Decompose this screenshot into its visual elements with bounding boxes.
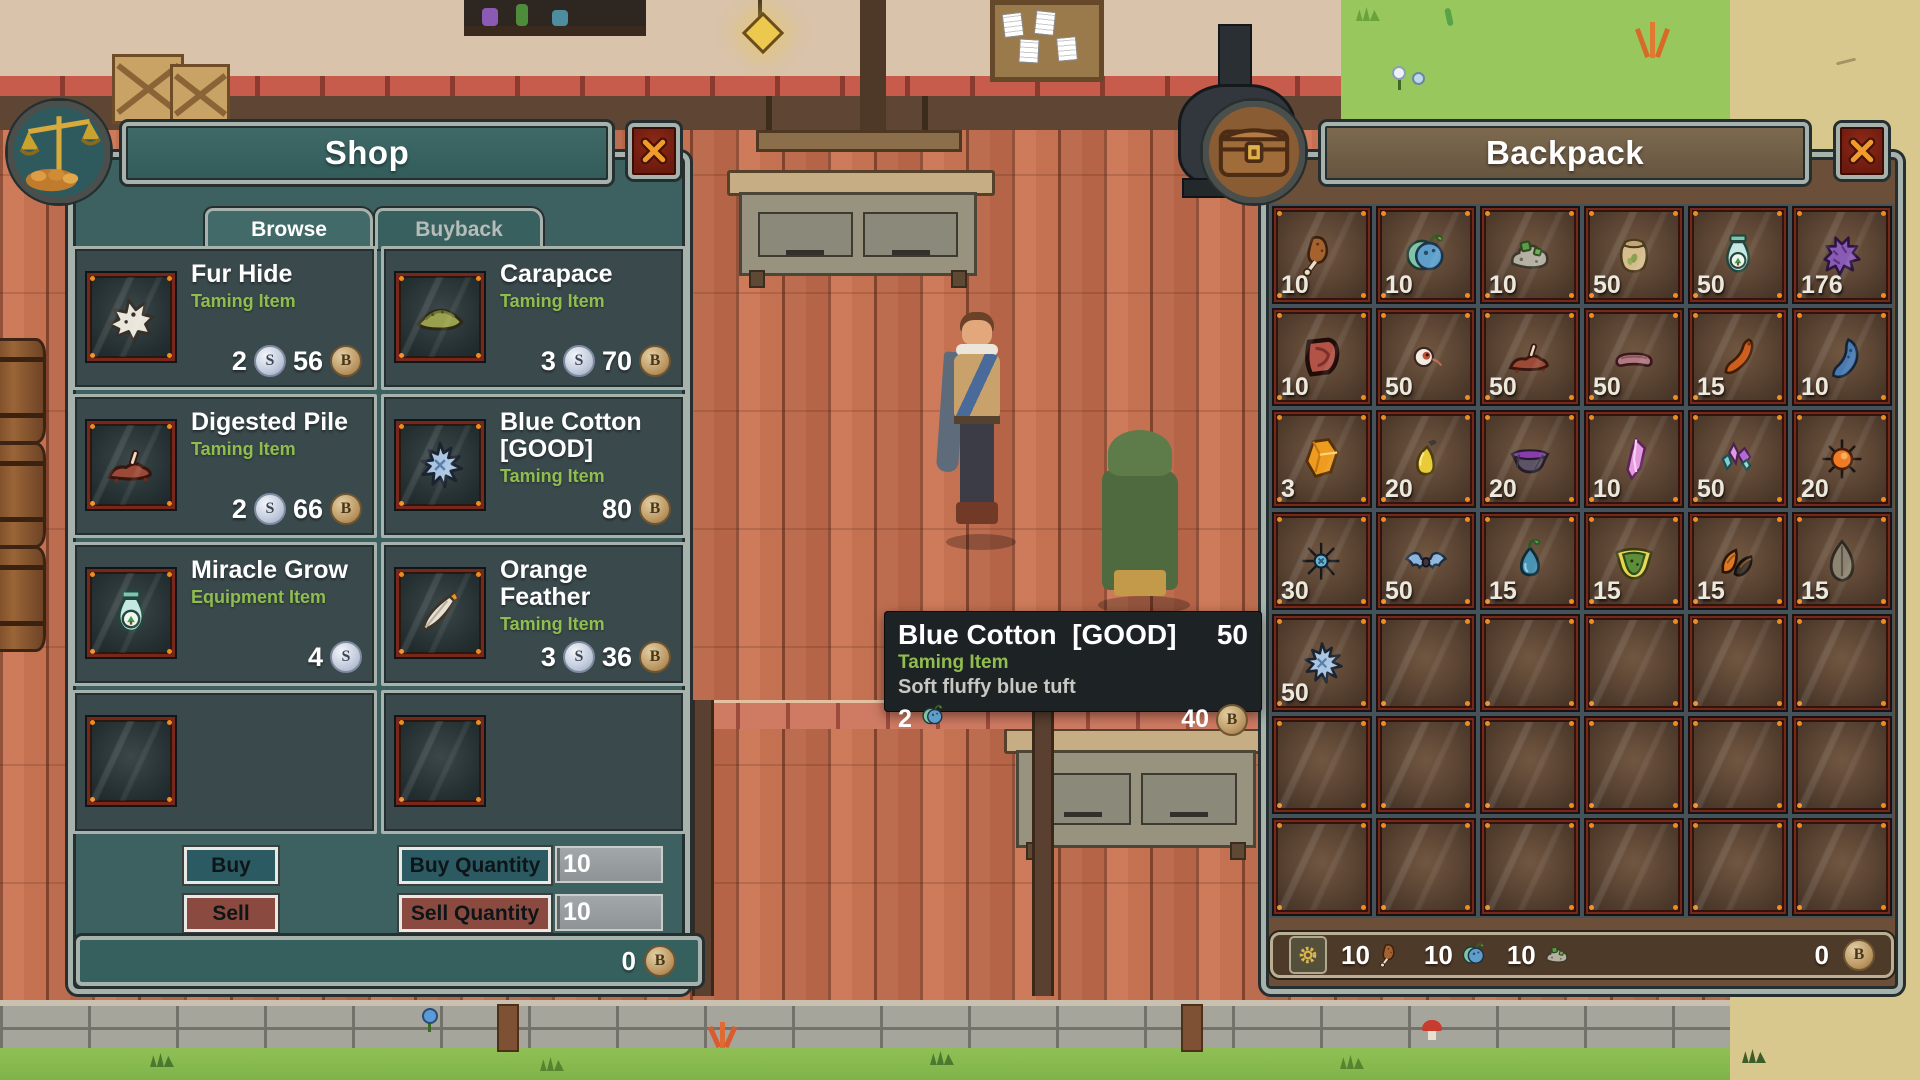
- backpack-slot[interactable]: 50: [1374, 306, 1478, 408]
- shop-item-name: Carapace: [500, 261, 675, 288]
- resource-value: 10: [1424, 940, 1453, 971]
- backpack-slot[interactable]: 50: [1686, 408, 1790, 510]
- backpack-slot[interactable]: 20: [1478, 408, 1582, 510]
- blue-fruit-icon: [919, 702, 947, 730]
- backpack-slot[interactable]: 50: [1582, 204, 1686, 306]
- backpack-empty-slot[interactable]: [1270, 714, 1374, 816]
- hanging-rod: [766, 96, 772, 132]
- bronze-coin-icon: B: [644, 945, 676, 977]
- blue-flower: [422, 1008, 438, 1024]
- notice-paper: [1002, 12, 1025, 38]
- notice-paper: [1018, 38, 1039, 63]
- slot-count: 10: [1281, 271, 1309, 300]
- shop-wallet-bronze-value: 0: [622, 946, 636, 977]
- shop-item-price: 2S66B: [232, 493, 362, 525]
- sell-quantity-input[interactable]: [557, 896, 661, 929]
- backpack-slot[interactable]: 20: [1374, 408, 1478, 510]
- price-bronze-value: 66: [293, 494, 323, 525]
- sausage-icon: [1608, 331, 1660, 383]
- shop-item-type: Taming Item: [500, 614, 675, 635]
- slot-count: 50: [1593, 373, 1621, 402]
- red-meat-icon: [1296, 331, 1348, 383]
- shop-item-slot[interactable]: [394, 271, 486, 363]
- water-sprout-icon: [1504, 535, 1556, 587]
- shop-item-card[interactable]: Orange Feather Taming Item 3S36B: [381, 542, 686, 686]
- sell-quantity-label-text: Sell Quantity: [411, 902, 539, 926]
- item-tooltip: Blue Cotton [GOOD] 50 Taming Item Soft f…: [884, 611, 1262, 712]
- shop-item-card[interactable]: Blue Cotton [GOOD] Taming Item 80B: [381, 394, 686, 538]
- backpack-slot[interactable]: 10: [1270, 306, 1374, 408]
- hanging-rod: [922, 96, 928, 132]
- backpack-slot[interactable]: 15: [1686, 510, 1790, 612]
- slot-count: 10: [1385, 271, 1413, 300]
- spray-bottle-icon: [102, 584, 160, 642]
- drawer-table-top: [739, 170, 977, 288]
- slot-count: 15: [1801, 577, 1829, 606]
- shop-panel-title: Shop: [122, 122, 612, 184]
- shop-item-price: 80B: [602, 493, 671, 525]
- orange-plant: [1650, 22, 1655, 58]
- table-body: [739, 192, 977, 276]
- meat-bone-icon: [1376, 940, 1406, 970]
- wall-shelf-board: [464, 26, 646, 36]
- shop-item-grid: Fur Hide Taming Item 2S56B Carapace Tami…: [72, 246, 686, 834]
- tooltip-buy-cost-value: 2: [898, 705, 912, 734]
- buy-button-label: Buy: [211, 854, 251, 878]
- backpack-slot[interactable]: 15: [1478, 510, 1582, 612]
- digested-pile-icon: [102, 436, 160, 494]
- bronze-coin-icon: B: [1216, 704, 1248, 736]
- silver-coin-icon: S: [254, 345, 286, 377]
- shop-item-slot[interactable]: [85, 271, 177, 363]
- slot-count: 50: [1489, 373, 1517, 402]
- shop-item-price: 3S36B: [541, 641, 671, 673]
- shop-item-name: Orange Feather: [500, 557, 675, 611]
- slot-count: 20: [1801, 475, 1829, 504]
- shop-item-card[interactable]: Carapace Taming Item 3S70B: [381, 246, 686, 390]
- blue-claw-icon: [1816, 331, 1868, 383]
- meat-bone-icon: [1296, 229, 1348, 281]
- sell-button-label: Sell: [212, 902, 249, 926]
- player-legs: [960, 424, 994, 504]
- player-character: [938, 312, 1016, 550]
- slot-count: 10: [1281, 373, 1309, 402]
- backpack-slot[interactable]: 3: [1270, 408, 1374, 510]
- backpack-empty-slot[interactable]: [1686, 816, 1790, 918]
- backpack-slot[interactable]: 20: [1790, 408, 1894, 510]
- player-torso: [954, 354, 1000, 420]
- player-belt: [954, 416, 1000, 424]
- tooltip-title: Blue Cotton [GOOD]: [898, 619, 1176, 651]
- resource-value: 10: [1507, 940, 1536, 971]
- price-silver-value: 2: [232, 494, 247, 525]
- slot-count: 50: [1281, 679, 1309, 708]
- barrel: [0, 338, 46, 444]
- price-silver-value: 3: [541, 642, 556, 673]
- shop-item-slot[interactable]: [85, 419, 177, 511]
- table-drawer: [758, 212, 852, 257]
- shop-item-slot[interactable]: [85, 567, 177, 659]
- shop-item-card[interactable]: Miracle Grow Equipment Item 4S: [72, 542, 377, 686]
- shop-item-slot[interactable]: [394, 567, 486, 659]
- game-scene: Shop Browse Buyback Fur Hide Taming Item…: [0, 0, 1920, 1080]
- settings-button[interactable]: [1289, 936, 1327, 974]
- slot-count: 30: [1281, 577, 1309, 606]
- stone-wall-bottom: [0, 1000, 1730, 1054]
- slot-count: 10: [1801, 373, 1829, 402]
- blue-fruit-icon: [1400, 229, 1452, 281]
- bronze-coin-icon: B: [1843, 939, 1875, 971]
- tab-browse[interactable]: Browse: [205, 208, 373, 249]
- shop-item-type: Taming Item: [191, 439, 366, 460]
- backpack-slot[interactable]: 15: [1582, 510, 1686, 612]
- backpack-empty-slot[interactable]: [1582, 612, 1686, 714]
- backpack-slot[interactable]: 50: [1478, 306, 1582, 408]
- price-silver-value: 4: [308, 642, 323, 673]
- backpack-slot[interactable]: 10: [1582, 408, 1686, 510]
- slot-count: 10: [1489, 271, 1517, 300]
- slot-count: 20: [1385, 475, 1413, 504]
- orange-claw-icon: [1712, 331, 1764, 383]
- table-leg: [749, 270, 765, 288]
- resource-counters: 10 10 10: [1341, 940, 1572, 971]
- backpack-slot[interactable]: 50: [1582, 306, 1686, 408]
- fur-hide-icon: [102, 288, 160, 346]
- tooltip-description: Soft fluffy blue tuft: [898, 676, 1248, 699]
- price-bronze-value: 56: [293, 346, 323, 377]
- notice-paper: [1034, 10, 1056, 36]
- shop-item-type: Equipment Item: [191, 587, 366, 608]
- backpack-slot[interactable]: 176: [1790, 204, 1894, 306]
- resource-counter: 10: [1507, 940, 1572, 971]
- blue-fruit-icon: [1459, 940, 1489, 970]
- buy-quantity-input[interactable]: [557, 848, 661, 881]
- spiky-sun-icon: [1816, 433, 1868, 485]
- barrel: [0, 442, 46, 548]
- empty-slot[interactable]: [85, 715, 177, 807]
- shelf-bottle-green: [516, 4, 528, 26]
- tooltip-sell-value-number: 40: [1181, 705, 1209, 734]
- price-silver-value: 2: [232, 346, 247, 377]
- backpack-empty-slot[interactable]: [1790, 816, 1894, 918]
- backpack-empty-slot[interactable]: [1790, 612, 1894, 714]
- empty-slot[interactable]: [394, 715, 486, 807]
- seed-pouch-icon: [1608, 229, 1660, 281]
- orange-gem-icon: [1296, 433, 1348, 485]
- backpack-empty-slot[interactable]: [1478, 612, 1582, 714]
- backpack-empty-slot[interactable]: [1686, 612, 1790, 714]
- digested-pile-icon: [1504, 331, 1556, 383]
- shop-close-button[interactable]: [628, 123, 680, 179]
- purple-bowl-icon: [1504, 433, 1556, 485]
- shop-item-type: Taming Item: [191, 291, 366, 312]
- blue-cotton-icon: [411, 436, 469, 494]
- shop-item-name: Blue Cotton [GOOD]: [500, 409, 675, 463]
- shop-empty-card: [381, 690, 686, 834]
- silver-coin-icon: S: [330, 641, 362, 673]
- silver-coin-icon: S: [563, 345, 595, 377]
- white-flower: [1392, 66, 1406, 80]
- tab-buyback-label: Buyback: [415, 218, 503, 242]
- shop-item-price: 4S: [308, 641, 362, 673]
- slot-count: 10: [1593, 475, 1621, 504]
- price-bronze-value: 36: [602, 642, 632, 673]
- slot-count: 50: [1593, 271, 1621, 300]
- tab-browse-label: Browse: [251, 218, 327, 242]
- backpack-empty-slot[interactable]: [1582, 714, 1686, 816]
- backpack-empty-slot[interactable]: [1374, 816, 1478, 918]
- shop-item-slot[interactable]: [394, 419, 486, 511]
- pink-crystal-icon: [1608, 433, 1660, 485]
- blue-burst-icon: [1296, 535, 1348, 587]
- backpack-empty-slot[interactable]: [1478, 816, 1582, 918]
- shop-wallet-bar: 0 B: [76, 936, 702, 986]
- tooltip-sell-value: 40B: [1181, 704, 1248, 736]
- shop-item-name: Digested Pile: [191, 409, 366, 436]
- backpack-close-button[interactable]: [1836, 123, 1888, 179]
- slot-count: 20: [1489, 475, 1517, 504]
- price-bronze-value: 70: [602, 346, 632, 377]
- gray-leaf-icon: [1816, 535, 1868, 587]
- slot-count: 50: [1385, 373, 1413, 402]
- moss-rock-icon: [1542, 940, 1572, 970]
- shop-empty-card: [72, 690, 377, 834]
- slot-count: 15: [1489, 577, 1517, 606]
- backpack-empty-slot[interactable]: [1478, 714, 1582, 816]
- close-icon: [639, 136, 669, 166]
- buy-button[interactable]: Buy: [184, 847, 278, 884]
- backpack-slot[interactable]: 50: [1374, 510, 1478, 612]
- sell-quantity-label: Sell Quantity: [399, 895, 551, 932]
- spray-bottle-icon: [1712, 229, 1764, 281]
- slot-count: 50: [1385, 577, 1413, 606]
- shop-title-text: Shop: [325, 134, 409, 172]
- seed-pods-icon: [1712, 535, 1764, 587]
- shop-item-card[interactable]: Fur Hide Taming Item 2S56B: [72, 246, 377, 390]
- price-silver-value: 3: [541, 346, 556, 377]
- bronze-coin-icon: B: [639, 641, 671, 673]
- barrel: [0, 546, 46, 652]
- backpack-slot[interactable]: 50: [1270, 612, 1374, 714]
- scales-emblem-icon: [8, 101, 110, 203]
- backpack-slot[interactable]: 15: [1790, 510, 1894, 612]
- crystal-cluster-icon: [1712, 433, 1764, 485]
- tooltip-buy-cost: 2: [898, 702, 947, 737]
- tab-buyback[interactable]: Buyback: [375, 208, 543, 249]
- bronze-coin-icon: B: [639, 493, 671, 525]
- slot-count: 50: [1697, 271, 1725, 300]
- table-drawer: [1141, 773, 1236, 825]
- backpack-empty-slot[interactable]: [1790, 714, 1894, 816]
- backpack-empty-slot[interactable]: [1374, 714, 1478, 816]
- tooltip-stack-count: 50: [1217, 619, 1248, 651]
- blue-cotton-icon: [1296, 637, 1348, 689]
- resource-counter: 10: [1424, 940, 1489, 971]
- backpack-slot[interactable]: 10: [1374, 204, 1478, 306]
- backpack-slot[interactable]: 10: [1478, 204, 1582, 306]
- backpack-panel: Backpack 1010105050176105050501510320201…: [1261, 96, 1903, 995]
- npc-trim: [1114, 570, 1166, 596]
- shop-item-type: Taming Item: [500, 291, 675, 312]
- wall-post: [860, 0, 886, 132]
- shelf-jar-teal: [552, 10, 568, 26]
- shop-item-card[interactable]: Digested Pile Taming Item 2S66B: [72, 394, 377, 538]
- bronze-coin-icon: B: [639, 345, 671, 377]
- eyeball-icon: [1400, 331, 1452, 383]
- shop-item-price: 2S56B: [232, 345, 362, 377]
- backpack-grid: 1010105050176105050501510320201050203050…: [1270, 204, 1894, 918]
- backpack-slot[interactable]: 30: [1270, 510, 1374, 612]
- backpack-slot[interactable]: 10: [1790, 306, 1894, 408]
- backpack-slot[interactable]: 50: [1686, 204, 1790, 306]
- buy-quantity-label-text: Buy Quantity: [410, 854, 541, 878]
- slot-count: 15: [1593, 577, 1621, 606]
- backpack-footer-bar: 10 10 10 0 B: [1270, 932, 1894, 978]
- moss-rock-icon: [1504, 229, 1556, 281]
- buy-quantity-label: Buy Quantity: [399, 847, 551, 884]
- bronze-coin-icon: B: [330, 345, 362, 377]
- backpack-slot[interactable]: 10: [1270, 204, 1374, 306]
- melon-slice-icon: [1608, 535, 1660, 587]
- resource-value: 10: [1341, 940, 1370, 971]
- sell-button[interactable]: Sell: [184, 895, 278, 932]
- backpack-empty-slot[interactable]: [1374, 612, 1478, 714]
- grass-strip-bottom: [0, 1048, 1730, 1080]
- notice-board: [990, 0, 1104, 82]
- oil-flask-icon: [1400, 433, 1452, 485]
- npc-shopkeeper[interactable]: [1090, 430, 1196, 612]
- purple-fluff-icon: [1816, 229, 1868, 281]
- orange-feather-icon: [411, 584, 469, 642]
- slot-count: 176: [1801, 271, 1843, 300]
- shop-item-price: 3S70B: [541, 345, 671, 377]
- backpack-emblem-icon: [1203, 101, 1305, 203]
- backpack-panel-title: Backpack: [1321, 122, 1809, 184]
- slot-count: 50: [1697, 475, 1725, 504]
- backpack-empty-slot[interactable]: [1270, 816, 1374, 918]
- porch-post: [1032, 700, 1054, 996]
- slot-count: 15: [1697, 373, 1725, 402]
- npc-hood: [1108, 430, 1172, 476]
- tooltip-item-type: Taming Item: [898, 652, 1248, 674]
- stone-wall-post: [497, 1004, 519, 1052]
- price-bronze-value: 80: [602, 494, 632, 525]
- table-drawer: [863, 212, 957, 257]
- slot-count: 15: [1697, 577, 1725, 606]
- silver-coin-icon: S: [254, 493, 286, 525]
- backpack-empty-slot[interactable]: [1686, 714, 1790, 816]
- backpack-slot[interactable]: 15: [1686, 306, 1790, 408]
- stone-wall-post: [1181, 1004, 1203, 1052]
- bronze-coin-icon: B: [330, 493, 362, 525]
- shelf-jar-purple: [482, 8, 498, 26]
- table-leg: [951, 270, 967, 288]
- mushroom-cap: [1422, 1020, 1442, 1031]
- mushroom-stem: [1428, 1030, 1436, 1040]
- resource-counter: 10: [1341, 940, 1406, 971]
- shop-item-name: Miracle Grow: [191, 557, 366, 584]
- player-head: [962, 320, 992, 346]
- notice-paper: [1056, 36, 1078, 62]
- blue-berry: [1412, 72, 1425, 85]
- shop-item-name: Fur Hide: [191, 261, 366, 288]
- slot-count: 3: [1281, 475, 1295, 504]
- hanging-shelf: [756, 130, 962, 152]
- table-leg: [1230, 842, 1246, 860]
- gear-icon: [1296, 943, 1320, 967]
- player-boots: [956, 502, 998, 524]
- backpack-empty-slot[interactable]: [1582, 816, 1686, 918]
- carapace-icon: [411, 288, 469, 346]
- silver-coin-icon: S: [563, 641, 595, 673]
- backpack-wallet-bronze-value: 0: [1815, 940, 1829, 971]
- close-icon: [1847, 136, 1877, 166]
- shop-item-type: Taming Item: [500, 466, 675, 487]
- bat-icon: [1400, 535, 1452, 587]
- backpack-title-text: Backpack: [1486, 134, 1644, 172]
- shop-panel: Shop Browse Buyback Fur Hide Taming Item…: [68, 96, 691, 995]
